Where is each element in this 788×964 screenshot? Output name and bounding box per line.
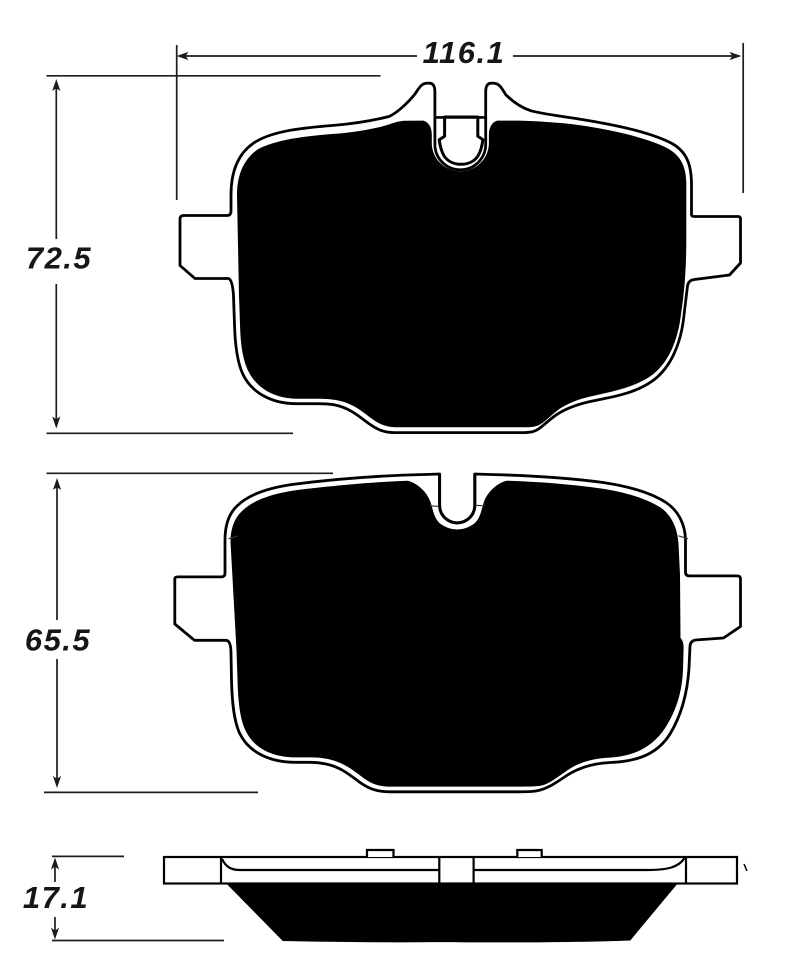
svg-text:116.1: 116.1 [423,35,506,70]
svg-text:17.1: 17.1 [23,880,89,915]
svg-text:65.5: 65.5 [25,623,91,658]
svg-text:72.5: 72.5 [26,241,92,276]
